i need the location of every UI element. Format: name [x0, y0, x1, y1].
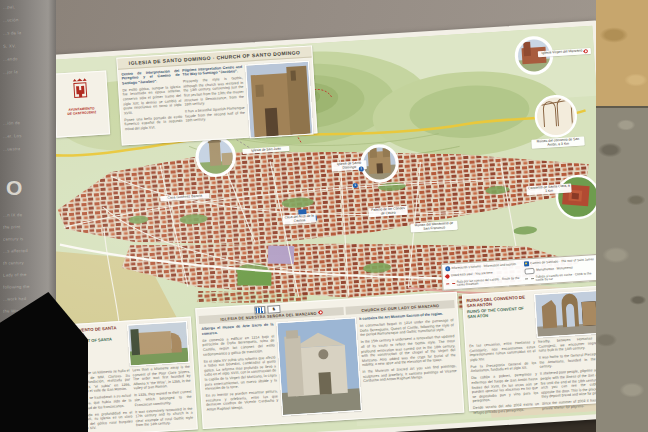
- castrojeriz-map-panel: AYUNTAMIENTO DE CASTROJERIZ IGLESIA DE S…: [28, 20, 622, 432]
- photo-of-town-map-sign: AYUNTAMIENTO DE CASTROJERIZ IGLESIA DE S…: [0, 0, 648, 432]
- grey-dashed-line-icon: [525, 278, 534, 280]
- stone-wall: [596, 0, 648, 432]
- engraved-text-fragment: the print: [3, 223, 53, 229]
- es-paragraph: En su interior se pueden encontrar pintu…: [206, 389, 279, 412]
- inset-santa-clara: [556, 175, 601, 220]
- engraved-text-fragment: ...ución: [3, 16, 53, 22]
- engraved-text-fragment: S, XV,: [3, 42, 53, 48]
- en-paragraph: Less than a kilometre away is the conven…: [132, 365, 191, 392]
- you-are-here-pin-icon: [583, 48, 589, 54]
- monument-pill-icon: [524, 267, 534, 274]
- santo-domingo-info-card: IGLESIA DE SANTO DOMINGO · CHURCH OF SAN…: [116, 45, 317, 145]
- legend-label: Usted está aquí · You are here: [451, 271, 493, 277]
- legend-label: Monumentos · Monuments: [536, 266, 573, 272]
- es-paragraph: Desde verano del año 2002 existe un refu…: [473, 402, 539, 415]
- pin-icon: [445, 273, 450, 278]
- region-flag-logo: [254, 306, 265, 314]
- legend-label: Subida al castillo en coche · Climb to t…: [535, 271, 600, 282]
- stone-wall-top-block: [596, 0, 648, 108]
- clara-english-text: Less than a kilometre away is the conven…: [132, 365, 193, 431]
- es-paragraph: En las cercanías, entre Hontanas y Castr…: [469, 340, 536, 362]
- ayuntamiento-crest-card: AYUNTAMIENTO DE CASTROJERIZ: [52, 70, 110, 137]
- legend-column-right: Camino de Santiago · The way of Saint Ja…: [524, 257, 600, 283]
- red-dashed-line-icon: [446, 283, 455, 285]
- santo-domingo-english-text: Pilgrims Interpretation Centre and The W…: [182, 64, 246, 142]
- engraved-text-fragment: ...ar. Los: [3, 132, 53, 138]
- manzano-info-card: ♞ IGLESIA DE NUESTRA SEÑORA DEL MANZANO …: [195, 292, 464, 429]
- en-paragraph: In the 15th century it underwent a renov…: [361, 334, 457, 367]
- en-paragraph: Presently the style is Gothic, although …: [183, 76, 245, 107]
- xacobeo-horse-logo: ♞: [267, 305, 280, 313]
- engraved-text-fragment: ...n IX de: [3, 211, 53, 217]
- en-paragraph: It has a beautiful Spanish Flamenque faç…: [185, 106, 246, 124]
- anton-title-en: RUINS OF THE CONVENT OF SAN ATÓN: [467, 306, 532, 320]
- manzano-spanish-text: Alberga el museo de Arte Sacro de la com…: [201, 323, 279, 421]
- inset-san-anton-ruins: [535, 95, 577, 137]
- engraved-text-fragment: century is: [3, 235, 53, 241]
- santo-domingo-church-photo: [245, 60, 314, 138]
- manzano-english-text: It contains the Art Museum Sacrum of the…: [359, 311, 459, 411]
- en-paragraph: It was extensively renovated in the 17th…: [135, 406, 194, 428]
- es-paragraph: Posee una bella portada de estilo flamen…: [124, 114, 183, 131]
- es-paragraph: De estilo gótico, aunque la iglesia fue …: [122, 85, 182, 116]
- engraved-text-fragment: Lady of the: [3, 271, 53, 277]
- engraved-text-fragment: ...pal,: [3, 3, 53, 9]
- es-paragraph: Dio cobijo a pobres, peregrinos y enferm…: [471, 372, 539, 404]
- castrojeriz-coat-of-arms: [69, 76, 90, 101]
- es-paragraph: En el siglo XV sufrió una reforma que af…: [203, 355, 277, 392]
- label-text: Palacio de los Condes de Castro: [370, 207, 406, 217]
- you-are-here-pin-icon: [318, 310, 324, 316]
- en-paragraph: In the Museum of Sacred Art you can find…: [362, 364, 457, 384]
- engraved-text-fragment: ...s affected: [3, 247, 53, 253]
- engraved-text-fragment: following the: [3, 283, 53, 289]
- legend-label: Ruta por las cuevas del castillo · Route…: [457, 276, 522, 287]
- manzano-church-photo: [276, 317, 362, 416]
- engraved-text-fragment: ...ión de: [3, 119, 53, 125]
- camino-shell-icon: [524, 261, 529, 266]
- legend-item-cave-route: Ruta por las cuevas del castillo · Route…: [446, 276, 521, 287]
- legend-column-left: iInformación y turismo · Information and…: [445, 262, 521, 288]
- santo-domingo-spanish-text: Centro de Interpretación del Peregrino y…: [121, 68, 184, 145]
- es-lead: Centro de Interpretación del Peregrino y…: [121, 68, 180, 85]
- san-anton-info-card: RUINAS DEL CONVENTO DE SAN ANTÓN RUINS O…: [462, 285, 613, 411]
- engraved-text-fragment: ...s de la: [3, 29, 53, 35]
- engraved-text-fragment: ...jor la: [3, 68, 53, 74]
- engraved-text-fragment: ...uestra: [3, 145, 53, 151]
- en-lead: Pilgrims Interpretation Centre and The W…: [182, 64, 242, 77]
- santa-clara-photo: [127, 321, 190, 367]
- anton-spanish-text: En las cercanías, entre Hontanas y Castr…: [469, 340, 540, 418]
- label-text: Casa del Arco de la Cantina: [284, 214, 314, 223]
- engraved-big-letter: O: [6, 176, 22, 200]
- es-paragraph: Se comenzó a edificar en 1214 bajo el pa…: [202, 334, 275, 357]
- san-anton-ruins-photo: [534, 290, 605, 338]
- en-paragraph: In 1326, they moved to their current sit…: [134, 390, 192, 407]
- legend-label: Información y turismo · Information and …: [451, 263, 516, 270]
- engraved-text-fragment: ...ando: [3, 55, 53, 61]
- info-icon: i: [445, 266, 450, 271]
- engraved-text-fragment: th century: [3, 259, 53, 265]
